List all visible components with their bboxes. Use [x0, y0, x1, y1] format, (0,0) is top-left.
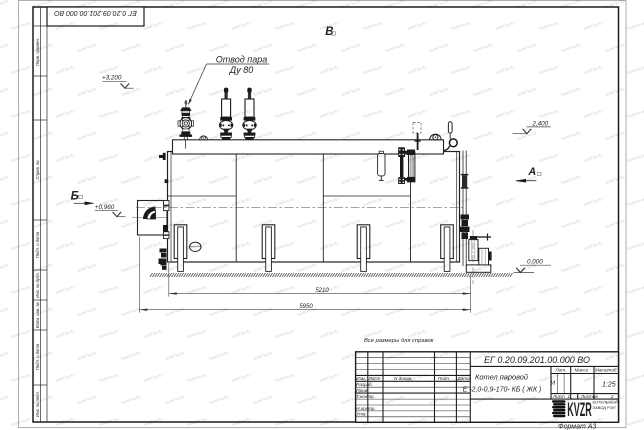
svg-text:Утв.: Утв. — [356, 412, 366, 417]
svg-text:1:25: 1:25 — [602, 382, 616, 389]
svg-text:ЗАВОД РЭП: ЗАВОД РЭП — [593, 405, 616, 410]
svg-text:И: И — [551, 380, 556, 387]
svg-text:Масштаб: Масштаб — [595, 368, 617, 373]
svg-text:2,400: 2,400 — [531, 120, 548, 127]
svg-text:KVZR: KVZR — [567, 399, 592, 421]
svg-text:Подп.: Подп. — [438, 376, 450, 381]
svg-text:+3,200: +3,200 — [102, 74, 122, 81]
svg-text:Подп. и дата: Подп. и дата — [35, 231, 40, 258]
svg-text:Н.контр.: Н.контр. — [356, 406, 375, 411]
svg-text:Справ. №: Справ. № — [35, 160, 40, 179]
svg-text:Е -2,0-0,9-170- КБ ( ЖК ): Е -2,0-0,9-170- КБ ( ЖК ) — [463, 387, 542, 394]
svg-text:Отвод пара: Отвод пара — [216, 55, 267, 65]
svg-text:Масса: Масса — [575, 368, 589, 373]
svg-text:Инв. № дубл.: Инв. № дубл. — [35, 272, 40, 298]
svg-text:Пров.: Пров. — [356, 388, 368, 393]
svg-text:Все размеры для справок: Все размеры для справок — [364, 338, 434, 344]
svg-text:ЕГ 0.20.09.201.00.000 ВО: ЕГ 0.20.09.201.00.000 ВО — [54, 9, 137, 16]
